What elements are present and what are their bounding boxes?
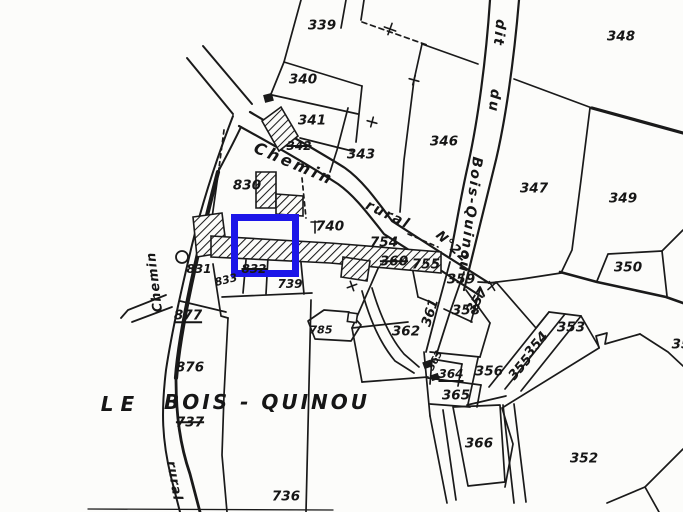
boundary-tick-icon: [311, 221, 319, 233]
dashes-before-n22: [408, 234, 438, 247]
cadastral-map: 3393403413423433463473483493503535235335…: [0, 0, 683, 512]
parcel-highlight-box[interactable]: [231, 214, 299, 277]
small-square-icon: [347, 312, 357, 322]
map-geometry: [0, 0, 683, 512]
boundary-cross-icon: [366, 116, 378, 128]
boundary-cross-icon: [346, 280, 359, 293]
well-circle-icon: [176, 251, 188, 263]
